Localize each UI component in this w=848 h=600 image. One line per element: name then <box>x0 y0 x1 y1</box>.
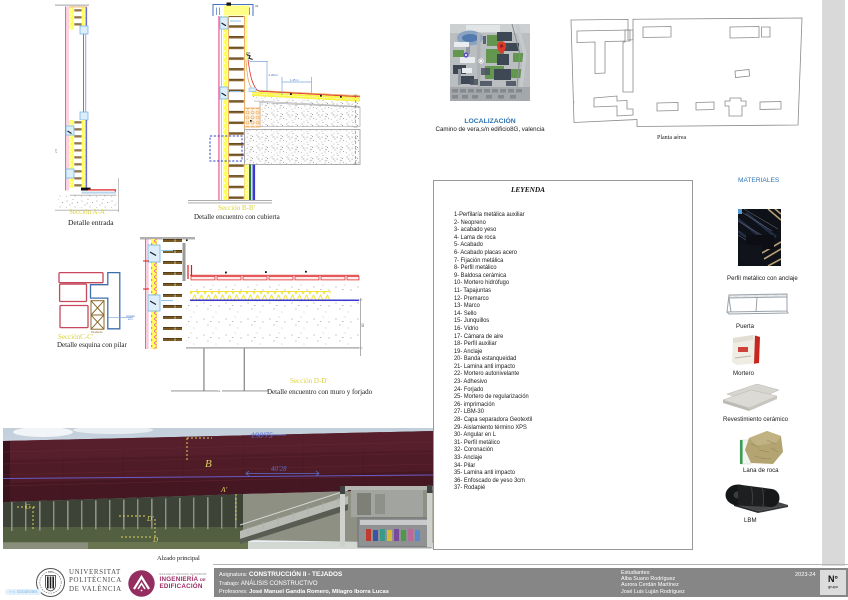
svg-text:190′75: 190′75 <box>251 431 273 440</box>
svg-text:D: D <box>152 536 158 544</box>
svg-text:en L: en L <box>128 317 134 321</box>
svg-text:1.45 m: 1.45 m <box>290 78 299 82</box>
svg-text:40′28: 40′28 <box>271 465 287 473</box>
svg-text:2.5: 2.5 <box>54 148 58 153</box>
svg-text:●●●: ●●● <box>48 571 53 574</box>
svg-text:33: 33 <box>255 4 259 8</box>
svg-text:A′: A′ <box>220 485 228 494</box>
svg-text:80: 80 <box>361 323 365 327</box>
svg-text:2.30cm: 2.30cm <box>269 73 279 77</box>
svg-text:B: B <box>205 458 212 470</box>
svg-text:o: o <box>219 389 221 393</box>
svg-text:D′: D′ <box>146 515 154 523</box>
